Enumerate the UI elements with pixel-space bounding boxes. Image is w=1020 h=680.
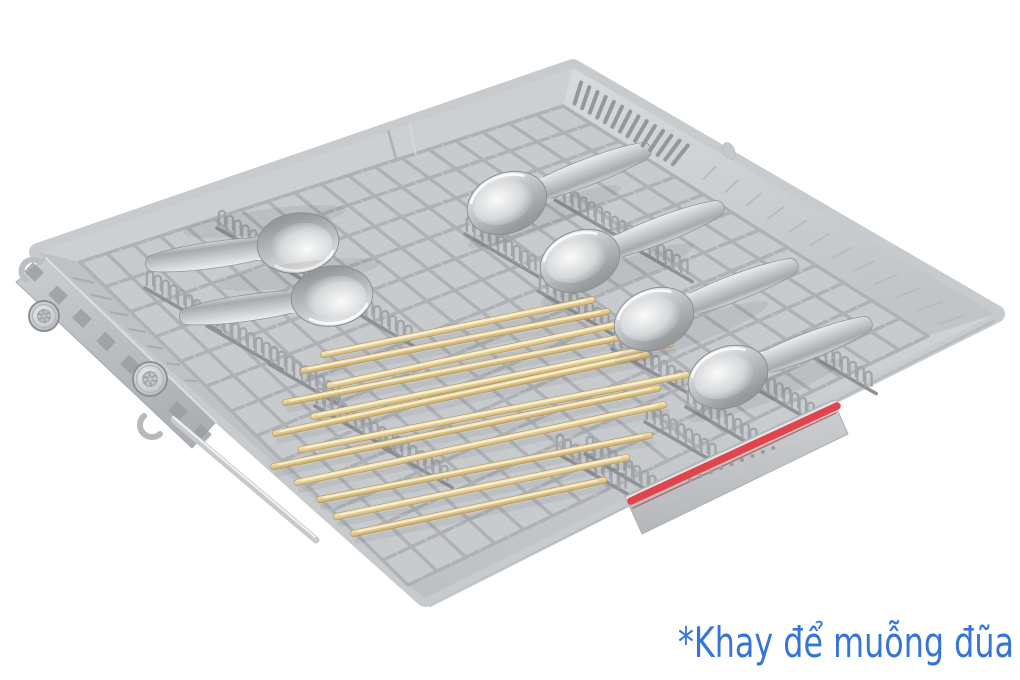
caption-text: *Khay để muỗng đũa (678, 618, 1014, 667)
cutlery-tray-illustration: *Khay để muỗng đũa (0, 0, 1020, 680)
product-photo-stage: *Khay để muỗng đũa (0, 0, 1020, 680)
roller-wheel (133, 362, 167, 396)
roller-wheel (29, 301, 59, 331)
